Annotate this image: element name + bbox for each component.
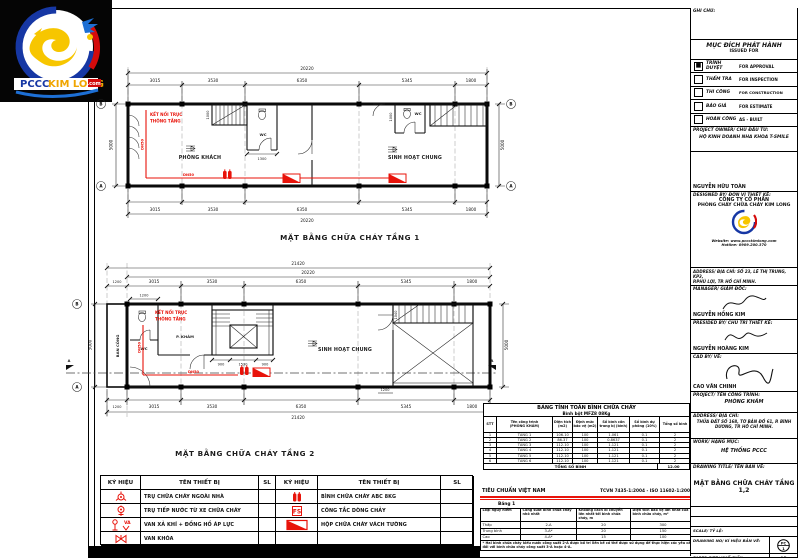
dim-label: 900 bbox=[218, 363, 225, 367]
red-divider bbox=[480, 496, 695, 498]
hose-cabinet-icon bbox=[286, 519, 308, 531]
issue-label-vn: THI CÔNG bbox=[706, 90, 739, 95]
standard-header: Loại nguy hiểm bbox=[481, 509, 521, 523]
pipe-label: DN50 bbox=[183, 173, 194, 177]
dim-label: 1000 bbox=[389, 113, 393, 122]
inspection-checkbox bbox=[694, 75, 703, 84]
door-arc bbox=[298, 140, 312, 154]
issue-row-inspection: THẨM TRA FOR INSPECTION bbox=[691, 73, 797, 86]
legend-header: SL bbox=[259, 476, 276, 490]
issue-label-en: AS - BUILT bbox=[739, 117, 762, 122]
dim-label: 5000 bbox=[109, 139, 114, 150]
door-arc bbox=[190, 355, 204, 369]
dim-label: 5345 bbox=[401, 404, 412, 409]
door-arc bbox=[378, 315, 393, 330]
plan2-title: MẶT BẰNG CHỮA CHÁY TẦNG 2 bbox=[125, 449, 365, 458]
plan1-garage-door bbox=[128, 115, 139, 159]
room-label: WC bbox=[415, 111, 422, 116]
dim-label: 20220 bbox=[300, 66, 314, 71]
dim-label: 1200 bbox=[381, 388, 390, 392]
legend-item-label: CÔNG TẮC DÒNG CHẢY bbox=[318, 504, 441, 518]
bottom-black-bar bbox=[88, 546, 480, 558]
drawing-sheet: PCCC KIM LONG .com 20220 3015 3530 6350 … bbox=[0, 0, 800, 558]
grid-bubble-label: B bbox=[75, 302, 78, 307]
void-x bbox=[393, 323, 473, 383]
legend-item-label: HỘP CHỮA CHÁY VÁCH TƯỜNG bbox=[318, 518, 441, 532]
plan2-dimensions-bottom: 1200 3015 3530 6350 5345 1800 21420 1200 bbox=[105, 388, 492, 420]
issue-row-estimate: BÁO GIÁ FOR ESTIMATE bbox=[691, 100, 797, 113]
company-mini-logo bbox=[731, 209, 757, 235]
dim-label: 3015 bbox=[150, 207, 161, 212]
drawing-title-value: MẶT BẰNG CHỮA CHÁY TẦNG 1,2 bbox=[691, 470, 797, 494]
calc-header: Số bình cần trang bị (bình) bbox=[598, 417, 630, 433]
manager-signature bbox=[719, 293, 769, 313]
company-address-line1: ADDRESS/ ĐỊA CHỈ: SỐ 23, LÊ THỊ TRUNG, K… bbox=[691, 268, 797, 279]
calc-header: STT bbox=[484, 417, 497, 433]
issue-label-vn: THẨM TRA bbox=[706, 77, 739, 82]
level-marker-icon bbox=[186, 146, 195, 151]
dim-label: 1800 bbox=[467, 279, 478, 284]
dim-label: 1000 bbox=[206, 111, 210, 120]
company-name-2: PHÒNG CHÁY CHỮA CHÁY KIM LONG bbox=[691, 203, 797, 208]
dim-label: 3015 bbox=[150, 78, 161, 83]
plan2-void-stair: 1040 bbox=[393, 304, 473, 383]
purpose-title-vn: MỤC ĐÍCH PHÁT HÀNH bbox=[691, 40, 797, 49]
paper-size-label: PAPER SIZE/ KHỔ GIẤY: bbox=[691, 554, 769, 558]
hose-cabinet-icon bbox=[389, 174, 406, 183]
issue-label-vn: BÁO GIÁ bbox=[706, 104, 739, 109]
asbuilt-checkbox bbox=[694, 115, 703, 124]
dim-label: 1800 bbox=[466, 78, 477, 83]
grid-bubble-label: A bbox=[509, 184, 513, 189]
dim-label: 3015 bbox=[149, 279, 160, 284]
logo-text-pccc: PCCC bbox=[20, 79, 49, 90]
issue-label-en: FOR APPROVAL bbox=[739, 64, 774, 69]
drawing-no-symbol: PC 1 bbox=[777, 539, 790, 552]
level-marker-icon bbox=[388, 147, 397, 152]
room-label: SINH HOẠT CHUNG bbox=[318, 347, 372, 353]
plan2-stair-elevator: 900 1530 900 bbox=[210, 310, 275, 367]
calc-header: Số bình dự phòng (10%) bbox=[630, 417, 660, 433]
plan2-wc: WC 1200 bbox=[128, 294, 160, 352]
dim-label: 3530 bbox=[208, 78, 219, 83]
dim-label: 21420 bbox=[291, 415, 305, 420]
plan1-stair-right bbox=[430, 104, 487, 126]
owner-name: HỘ KINH DOANH NHA KHOA T-SMILE bbox=[691, 133, 797, 140]
red-divider-thin bbox=[480, 499, 695, 500]
calc-header: Tên công trình (PHÒNG KHÁM) bbox=[497, 417, 553, 433]
extinguisher-calc-table: BẢNG TÍNH TOÁN BÌNH CHỮA CHÁY Bình bột M… bbox=[483, 403, 690, 470]
plan1-title: MẶT BẰNG CHỮA CHÁY TẦNG 1 bbox=[230, 233, 470, 242]
dim-label: 21420 bbox=[291, 261, 305, 266]
dim-label: 1530 bbox=[239, 363, 248, 367]
plan2-grid-bubbles: B A bbox=[73, 300, 82, 392]
dim-label: 900 bbox=[262, 363, 269, 367]
grid-bubble-label: A bbox=[75, 385, 79, 390]
shaft-note: THÔNG TẦNG bbox=[150, 119, 181, 124]
standard-table-label: Bảng 1 bbox=[498, 502, 695, 507]
door-arc bbox=[259, 138, 271, 150]
standard-header: Khoảng cách di chuyển lớn nhất tới bình … bbox=[577, 509, 631, 523]
presided-signature bbox=[721, 326, 771, 348]
drawing-no-cell: PC 1 bbox=[769, 537, 797, 554]
work-value: HỆ THỐNG PCCC bbox=[691, 445, 797, 454]
intake-hydrant-icon bbox=[113, 505, 129, 517]
construction-checkbox bbox=[694, 88, 703, 97]
title-block: GHI CHÚ: MỤC ĐÍCH PHÁT HÀNH ISSUED FOR ■… bbox=[690, 8, 797, 556]
cad-name: CAO VĂN CHINH bbox=[691, 385, 736, 390]
gate-valve-icon bbox=[113, 533, 129, 545]
issue-label-vn: TRÌNH DUYỆT bbox=[706, 61, 739, 71]
door-arc bbox=[140, 330, 150, 340]
site-address-value: THỬA ĐẤT SỐ 168, TỜ BẢN ĐỒ 61, P. BÌNH D… bbox=[691, 419, 797, 429]
elevator-x bbox=[230, 325, 257, 348]
standard-footnote: * Hai bình chữa cháy kiểu nước công suất… bbox=[481, 541, 696, 550]
legend-item-label: VAN XẢ KHÍ + ĐỒNG HỒ ÁP LỰC bbox=[141, 518, 259, 532]
dim-label: 5000 bbox=[88, 339, 93, 350]
dim-label: 1200 bbox=[113, 280, 122, 284]
company-hotline: Hotline: 0909.200.370 bbox=[691, 243, 797, 247]
dim-label: 1800 bbox=[467, 404, 478, 409]
dim-label: 1040 bbox=[394, 311, 398, 320]
tcvn-standard-table: TIÊU CHUẨN VIỆT NAM TCVN 7435-1:2004 - I… bbox=[480, 487, 695, 551]
owner-sign-name: NGUYỄN HỮU TOÀN bbox=[691, 185, 746, 190]
room-label: BAN CÔNG bbox=[115, 335, 120, 358]
calc-table-title: BẢNG TÍNH TOÁN BÌNH CHỮA CHÁY bbox=[484, 404, 689, 411]
legend-item-label: TRỤ CHỮA CHÁY NGOÀI NHÀ bbox=[141, 490, 259, 504]
dim-label: 1200 bbox=[140, 294, 149, 298]
approval-checkbox: ■ bbox=[694, 62, 703, 71]
drawing-no-label: DRAWING NO/ KÍ HIỆU BẢN VẼ: bbox=[691, 537, 769, 543]
issue-label-vn: HOÀN CÔNG bbox=[706, 117, 739, 122]
legend-item-label bbox=[318, 532, 441, 546]
grid-bubble-label: A bbox=[99, 184, 103, 189]
shaft-note: KẾT NỐI TRỤC bbox=[155, 309, 187, 315]
legend-header: TÊN THIẾT BỊ bbox=[141, 476, 259, 490]
door-arc bbox=[404, 122, 415, 133]
manager-label: MANAGER/ GIÁM ĐỐC: bbox=[691, 286, 797, 292]
pipe-label: DN50 bbox=[141, 139, 145, 150]
dim-label: 1300 bbox=[258, 157, 267, 161]
dim-label: 3015 bbox=[149, 404, 160, 409]
drawing-no-top: PC bbox=[781, 541, 787, 545]
dim-label: 5345 bbox=[401, 279, 412, 284]
room-label: P. KHÁM bbox=[176, 334, 194, 339]
purpose-title-en: ISSUED FOR bbox=[691, 49, 797, 54]
legend-header: KÝ HIỆU bbox=[276, 476, 318, 490]
issue-row-asbuilt: HOÀN CÔNG AS - BUILT bbox=[691, 114, 797, 127]
paper-size-value: A3 bbox=[769, 554, 797, 558]
grid-bubble-label: B bbox=[99, 102, 102, 107]
issue-label-en: FOR ESTIMATE bbox=[739, 104, 772, 109]
calc-total-value: 12.00 bbox=[658, 464, 689, 469]
pipe-label: DN50 bbox=[188, 370, 199, 374]
floor-plan-1: 20220 3015 3530 6350 5345 1800 3015 3530… bbox=[88, 55, 688, 245]
manager-name: NGUYỄN HỒNG KIM bbox=[691, 313, 745, 318]
flow-switch-icon: FS bbox=[289, 505, 305, 517]
svg-text:FS: FS bbox=[292, 508, 300, 515]
notes-label: GHI CHÚ: bbox=[691, 8, 797, 14]
issue-row-approval: ■ TRÌNH DUYỆT FOR APPROVAL bbox=[691, 60, 797, 73]
calc-header: Diện tích (m2) bbox=[553, 417, 573, 433]
calc-total-label: TỔNG SỐ BÌNH bbox=[484, 464, 658, 469]
room-label: SINH HOẠT CHUNG bbox=[388, 155, 442, 161]
legend-table: KÝ HIỆU TÊN THIẾT BỊ SL KÝ HIỆU TÊN THIẾ… bbox=[100, 475, 473, 545]
dim-label: 1800 bbox=[466, 207, 477, 212]
door-arc bbox=[130, 367, 150, 387]
issue-label-en: FOR INSPECTION bbox=[739, 77, 778, 82]
plan2-dimensions-top: 21420 20220 1200 3015 3530 6350 5345 180… bbox=[105, 261, 492, 301]
standard-header: Công suất bình chữa cháy nhỏ nhất bbox=[521, 509, 577, 523]
dim-label: 6350 bbox=[296, 279, 307, 284]
dim-label: 5345 bbox=[402, 207, 413, 212]
section-marker-label: A bbox=[68, 359, 71, 363]
shaft-note: THÔNG TẦNG bbox=[155, 317, 186, 322]
plan2-common-room: SINH HOẠT CHUNG bbox=[308, 341, 372, 353]
plan2-section-line: A A bbox=[66, 359, 496, 373]
plan1-wc1: WC 1300 bbox=[245, 104, 279, 161]
legend-header: TÊN THIẾT BỊ bbox=[318, 476, 441, 490]
dim-label: 5345 bbox=[402, 78, 413, 83]
drawing-no-bottom: 1 bbox=[782, 547, 785, 551]
level-marker-icon bbox=[308, 341, 317, 346]
hose-cabinet-icon bbox=[283, 174, 300, 183]
dim-label: 6350 bbox=[296, 404, 307, 409]
checkbox-mark: ■ bbox=[696, 63, 702, 69]
dim-label: 1200 bbox=[113, 405, 122, 409]
plan1-dimensions-bottom: 3015 3530 6350 5345 1800 20220 bbox=[126, 189, 489, 223]
scale-label: SCALE/ TỶ LỆ: bbox=[691, 527, 797, 533]
dim-label: 3530 bbox=[207, 279, 218, 284]
plan1-stair: 1000 bbox=[206, 104, 247, 125]
room-label: WC bbox=[141, 346, 148, 351]
plan2-dimensions-sides: 5000 5000 bbox=[88, 302, 510, 389]
dim-label: 20220 bbox=[300, 218, 314, 223]
project-name: PHÒNG KHÁM bbox=[691, 398, 797, 405]
legend-header: SL bbox=[441, 476, 474, 490]
plan1-dimensions-top: 20220 3015 3530 6350 5345 1800 bbox=[126, 66, 489, 101]
issue-row-construction: THI CÔNG FOR CONSTRUCTION bbox=[691, 87, 797, 100]
plan1-room-labels: PHÒNG KHÁCH SINH HOẠT CHUNG bbox=[179, 146, 442, 161]
standard-header: Diện tích bảo vệ lớn nhất của 1 bình chữ… bbox=[631, 509, 696, 523]
grid-bubble-label: B bbox=[509, 102, 512, 107]
calc-header: Định mức bảo vệ (m2) bbox=[573, 417, 598, 433]
dim-label: 5000 bbox=[504, 339, 509, 350]
room-label: PHÒNG KHÁCH bbox=[179, 154, 221, 161]
outdoor-hydrant-icon bbox=[113, 491, 129, 503]
pipe-label: DN50 bbox=[138, 342, 142, 353]
dim-label: 6350 bbox=[297, 207, 308, 212]
legend-item-label: VAN KHÓA bbox=[141, 532, 259, 546]
standard-title: TIÊU CHUẨN VIỆT NAM bbox=[482, 488, 546, 494]
hose-cabinet-icon bbox=[253, 368, 270, 377]
dim-label: 3530 bbox=[208, 207, 219, 212]
estimate-checkbox bbox=[694, 102, 703, 111]
cad-signature bbox=[721, 359, 775, 385]
dim-label: 3530 bbox=[207, 404, 218, 409]
door-arc bbox=[373, 104, 385, 116]
dim-label: 20220 bbox=[301, 270, 315, 275]
room-label: WC bbox=[260, 132, 267, 137]
extinguisher-pair-icon bbox=[240, 365, 249, 375]
legend-header: KÝ HIỆU bbox=[101, 476, 141, 490]
dim-label: 5000 bbox=[500, 139, 505, 150]
presided-name: NGUYỄN HOÀNG KIM bbox=[691, 347, 749, 352]
floor-plan-2: 21420 20220 1200 3015 3530 6350 5345 180… bbox=[60, 255, 700, 427]
dim-label: 6350 bbox=[297, 78, 308, 83]
company-address-line2: P.PHÚ LỢI, TP. HỒ CHÍ MINH. bbox=[691, 279, 797, 284]
shaft-note: KẾT NỐI TRỤC bbox=[150, 111, 182, 117]
calc-header: Tổng số bình bbox=[660, 417, 691, 433]
issue-label-en: FOR CONSTRUCTION bbox=[739, 90, 783, 95]
legend-item-label: BÌNH CHỮA CHÁY ABC 8KG bbox=[318, 490, 441, 504]
plan1-fire-equipment: KẾT NỐI TRỤC THÔNG TẦNG DN50 DN50 bbox=[141, 110, 407, 183]
plan1-wc2: WC 1000 bbox=[373, 104, 425, 133]
standard-code: TCVN 7435-1:2004 - ISO 11602-1:2000 bbox=[600, 489, 693, 494]
svg-text:VA: VA bbox=[124, 520, 131, 526]
legend-item-label: TRỤ TIẾP NƯỚC TỪ XE CHỮA CHÁY bbox=[141, 504, 259, 518]
air-valve-gauge-icon: VA bbox=[109, 519, 133, 531]
extinguisher-pair-icon bbox=[289, 491, 305, 503]
